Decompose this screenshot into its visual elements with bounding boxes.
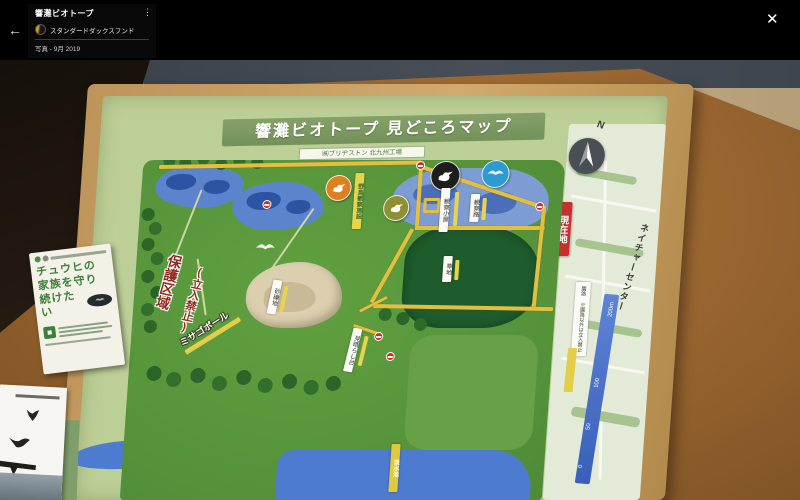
- more-options-icon[interactable]: ⋮: [143, 7, 152, 18]
- meadow-patch: [403, 335, 539, 450]
- map-canvas: 野鳥観察施設 観察小屋 観察路 草地 砂礫地 見晴らし台 淡水池 保護区域 (立…: [120, 160, 566, 500]
- map-subtitle: ㈱ブリヂストン 北九州工場: [299, 146, 426, 161]
- service-road: [570, 194, 656, 212]
- observation-deck-outline: [423, 198, 441, 213]
- scale-0: 0: [578, 464, 584, 468]
- osprey-pamphlet: [0, 384, 67, 500]
- bird-facility-label: 野鳥観察施設: [352, 173, 365, 229]
- biotope-map-board: 響灘ビオトープ 見どころマップ ㈱ブリヂストン 北九州工場 N: [75, 96, 668, 500]
- photo-spot-marker: [385, 352, 395, 361]
- photo-viewer: 響灘ビオトープ 見どころマップ ㈱ブリヂストン 北九州工場 N: [0, 0, 800, 500]
- logo-icon: [34, 256, 41, 263]
- pond-deep: [203, 180, 230, 194]
- osprey-bird-icon: [7, 433, 32, 452]
- grassland-label: 草地: [442, 256, 453, 282]
- contributor-name[interactable]: スタンダードダックスフンド: [50, 25, 134, 35]
- harrier-sign: チュウヒの 家族を守り 続けたい: [29, 243, 125, 374]
- scale-200: 200m: [607, 302, 615, 317]
- park-road: [159, 160, 421, 169]
- logo-icon: [42, 255, 49, 262]
- photo-info-panel: 響灘ビオトープ ⋮ スタンダードダックスフンド 写真 - 9月 2019: [28, 4, 156, 58]
- pond-blob: [231, 182, 326, 230]
- pamphlet-photo-band: [0, 472, 62, 500]
- freshwater-pond-shape: [275, 450, 534, 500]
- pamphlet-caption-line: [16, 394, 60, 399]
- sign-line-3: 続けたい: [39, 288, 87, 321]
- qr-code: [43, 326, 56, 339]
- pond-deep: [286, 200, 311, 214]
- scale-50: 50: [585, 423, 592, 430]
- scale-100: 100: [594, 378, 602, 389]
- gravel-area: [244, 262, 345, 328]
- osprey-bird-icon: [22, 408, 43, 425]
- no-entry-marker: [374, 332, 384, 341]
- photo-meta: 写真 - 9月 2019: [35, 43, 149, 53]
- photo-title: 響灘ビオトープ: [35, 8, 149, 19]
- tree-cluster: [146, 366, 162, 381]
- forest-patch: [400, 226, 542, 328]
- bird-photo-oval: [87, 293, 113, 308]
- panel-divider: [35, 39, 149, 40]
- map-title: 響灘ビオトープ 見どころマップ: [222, 113, 546, 147]
- street-view-photo[interactable]: 響灘ビオトープ 見どころマップ ㈱ブリヂストン 北九州工場 N: [0, 60, 800, 500]
- header-line: [50, 250, 106, 260]
- tree-cluster: [141, 208, 155, 221]
- pond-blob: [154, 166, 245, 208]
- pond-deep: [165, 174, 196, 190]
- contributor-row[interactable]: スタンダードダックスフンド: [35, 24, 149, 35]
- close-button[interactable]: ✕: [766, 10, 779, 28]
- back-button[interactable]: ←: [8, 22, 22, 38]
- tree-cluster: [378, 308, 392, 321]
- contributor-avatar[interactable]: [35, 24, 46, 35]
- harrier-bird-icon: [253, 240, 278, 256]
- hedge-row: [570, 406, 641, 428]
- park-road: [415, 226, 545, 230]
- protected-area-text-1: 保護区域: [152, 253, 187, 312]
- bird-icon-orange: [325, 175, 353, 201]
- compass-icon: [568, 138, 607, 174]
